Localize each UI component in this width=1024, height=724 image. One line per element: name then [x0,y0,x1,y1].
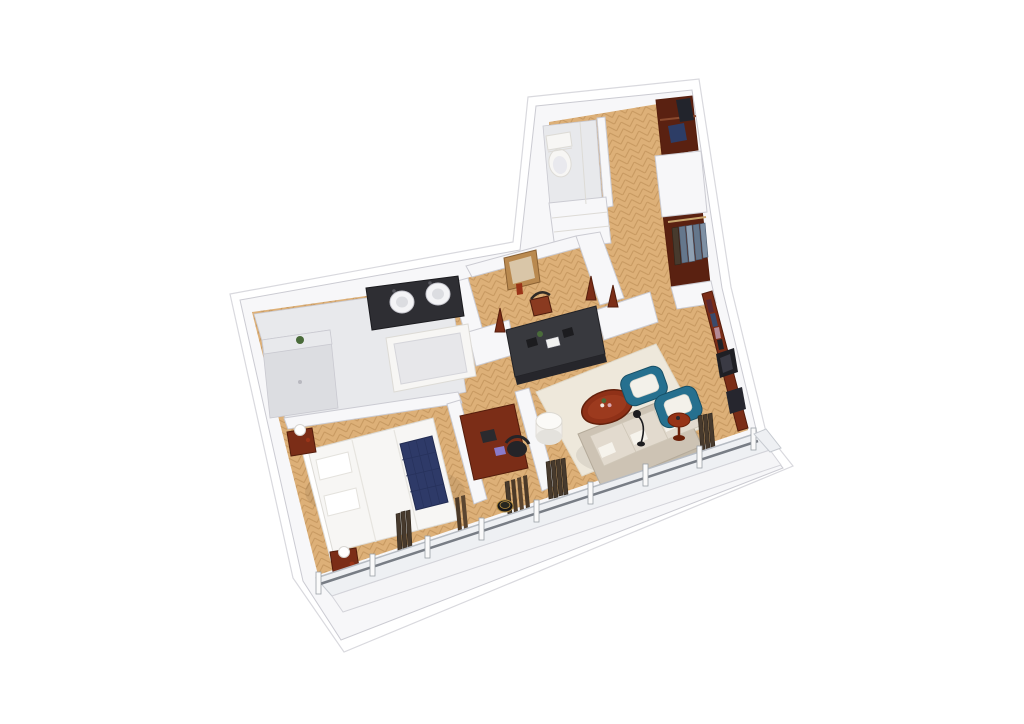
blue-duffel-bag [668,123,687,143]
faucet-right [428,281,432,285]
mullion-post [479,518,484,540]
cylinder-top [536,413,562,430]
floor-lamp-shade [633,410,641,418]
mullion-post [643,464,648,486]
shower-plant [296,336,304,344]
console-plant [537,331,543,337]
table-lamp [339,547,350,558]
mullion-post [425,536,430,558]
desk-chair-seat [507,441,527,457]
cylinder-side-table [536,413,562,446]
table-lamp [295,425,306,436]
side-table-top [668,413,690,427]
chair-seat [530,296,552,316]
cylinder-bottom [536,429,562,445]
apartment-floorplan-svg [0,0,1024,724]
console-vase [516,283,523,295]
barrel-stool [497,500,513,512]
faucet-left [392,289,396,293]
mullion-post [534,500,539,522]
sink-right-basin [432,289,444,300]
side-table-decor [676,416,680,420]
mullion-post [751,428,756,450]
wall-between-closets [655,151,707,217]
curtain-bundle-living [698,413,715,451]
mullion-post [588,482,593,504]
side-table-base [673,435,685,441]
barrel-stool-ring [500,502,510,509]
shower-drain [298,380,302,384]
mullion-post [370,554,375,576]
walk-in-shower [262,330,338,418]
sink-left-basin [396,297,408,308]
mullion-post [316,572,321,594]
floorplan-render-canvas [0,0,1024,724]
curtain-bundle-bedroom [396,510,412,551]
red-vase [306,438,310,442]
mullion-post [697,446,702,468]
